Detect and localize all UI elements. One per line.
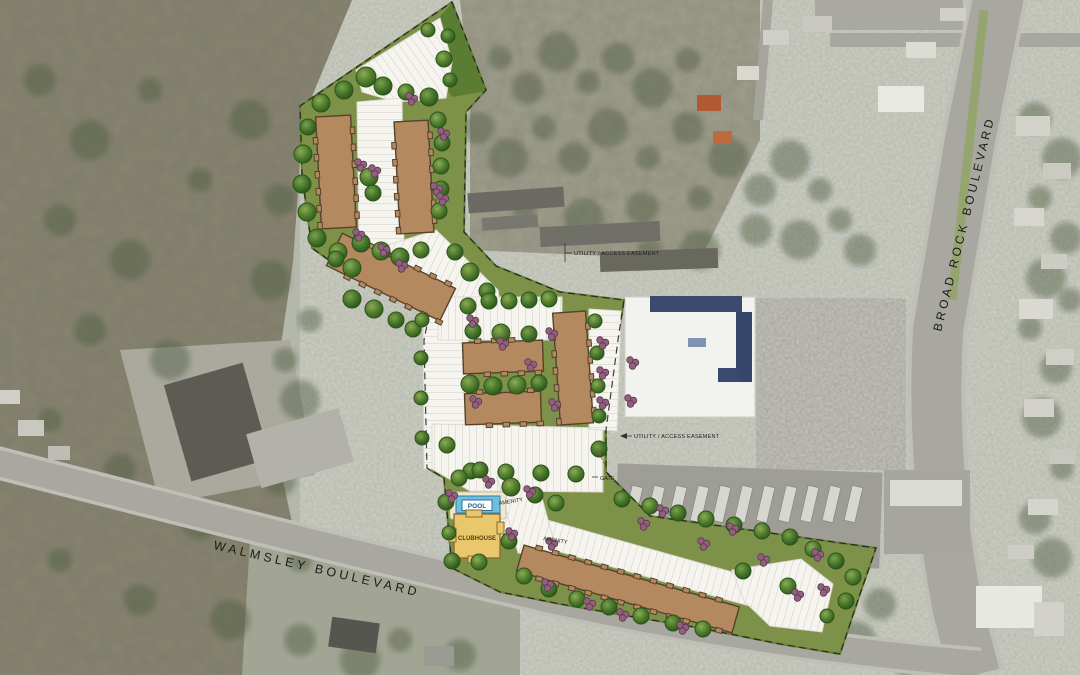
aerial-tree [576, 70, 600, 94]
map-canvas: POOL CLUBHOUSE UTILITY / ACCESS EASEMENT… [0, 0, 1080, 675]
tree [365, 300, 383, 318]
tree [521, 292, 537, 308]
aerial-tree [210, 600, 250, 640]
tree [433, 158, 449, 174]
aerial-tree [230, 100, 270, 140]
tree [541, 291, 557, 307]
tree [521, 326, 537, 342]
tree [335, 81, 353, 99]
tree [569, 591, 585, 607]
tree [356, 67, 376, 87]
tree [293, 175, 311, 193]
aerial-building [802, 16, 832, 32]
gate-label: GATE [600, 476, 615, 482]
tree [460, 298, 476, 314]
aerial-tree [780, 220, 820, 260]
tree [300, 119, 316, 135]
aerial-tree [602, 42, 634, 74]
tree [441, 29, 455, 43]
aerial-tree [124, 584, 156, 616]
clubhouse-label: CLUBHOUSE [458, 536, 496, 542]
tree [695, 621, 711, 637]
aerial-tree [626, 192, 658, 224]
aerial-tree [138, 78, 162, 102]
aerial-tree [808, 178, 832, 202]
tree [484, 377, 502, 395]
aerial-tree [672, 112, 704, 144]
tree [533, 465, 549, 481]
tree [443, 73, 457, 87]
aerial-building [18, 420, 44, 436]
tree [431, 203, 447, 219]
aerial-tree [48, 548, 72, 572]
aerial-tree [488, 46, 512, 70]
tree [591, 379, 605, 393]
aerial-tree [1018, 316, 1042, 340]
tree [601, 599, 617, 615]
aerial-building [763, 30, 789, 45]
tree [592, 409, 606, 423]
tree [328, 251, 344, 267]
aerial-tree [74, 314, 106, 346]
tree [294, 145, 312, 163]
tree [820, 609, 834, 623]
aerial-tree [828, 208, 852, 232]
aerial-building [1049, 449, 1075, 464]
aerial-building [940, 8, 966, 21]
aerial-tree [538, 32, 578, 72]
amenity-area: POOL CLUBHOUSE [449, 492, 506, 563]
tree [298, 203, 316, 221]
site-plan-aerial-map: POOL CLUBHOUSE UTILITY / ACCESS EASEMENT… [0, 0, 1080, 675]
tree [343, 259, 361, 277]
tree [461, 263, 479, 281]
tree [548, 495, 564, 511]
apartment-building [312, 115, 360, 229]
aerial-tree [864, 588, 896, 620]
tree [481, 293, 497, 309]
tree [588, 314, 602, 328]
apartment-building [391, 120, 438, 234]
tree [439, 437, 455, 453]
aerial-tree [273, 348, 297, 372]
aerial-building [1016, 116, 1050, 136]
tree [421, 23, 435, 37]
tree [754, 523, 770, 539]
tree [508, 376, 526, 394]
tree [531, 375, 547, 391]
tree [415, 431, 429, 445]
tree [447, 244, 463, 260]
tree [471, 554, 487, 570]
aerial-tree [676, 48, 700, 72]
aerial-building [1014, 208, 1044, 226]
tree [343, 290, 361, 308]
aerial-tree [1028, 186, 1052, 210]
aerial-building [1046, 349, 1074, 365]
tree [451, 470, 467, 486]
tree [782, 529, 798, 545]
aerial-tree [280, 380, 320, 420]
tree [415, 313, 429, 327]
tree [828, 553, 844, 569]
utility-easement-label-south: UTILITY / ACCESS EASEMENT [634, 434, 720, 440]
aerial-tree [284, 624, 316, 656]
aerial-building [1041, 254, 1067, 269]
tree [633, 608, 649, 624]
tree [670, 505, 686, 521]
aerial-building [48, 446, 70, 460]
tree [413, 242, 429, 258]
tree [312, 94, 330, 112]
aerial-tree [388, 628, 412, 652]
tree [430, 112, 446, 128]
tree [845, 569, 861, 585]
aerial-tree [588, 108, 628, 148]
aerial-building [976, 586, 1042, 628]
tree [642, 498, 658, 514]
aerial-tree [44, 204, 76, 236]
aerial-building [713, 131, 732, 144]
aerial-building [424, 646, 454, 666]
tree [501, 293, 517, 309]
tree [698, 511, 714, 527]
aerial-tree [250, 260, 290, 300]
tree [436, 51, 452, 67]
aerial-tree [110, 240, 150, 280]
tree [308, 229, 326, 247]
pool-label: POOL [468, 503, 486, 510]
aerial-tree [636, 146, 660, 170]
tree [838, 593, 854, 609]
aerial-tree [740, 214, 772, 246]
aerial-tree [688, 186, 712, 210]
tree [461, 375, 479, 393]
aerial-tree [264, 184, 296, 216]
aerial-tree [844, 234, 876, 266]
aerial-tree [744, 174, 776, 206]
aerial-tree [298, 308, 322, 332]
tree [414, 391, 428, 405]
tree [444, 553, 460, 569]
aerial-building [0, 390, 20, 404]
tree [735, 563, 751, 579]
aerial-building [906, 42, 936, 58]
aerial-tree [532, 116, 556, 140]
tree [388, 312, 404, 328]
utility-easement-label-north: UTILITY / ACCESS EASEMENT [574, 251, 660, 257]
aerial-tree [70, 120, 110, 160]
aerial-tree [512, 72, 544, 104]
tree [614, 491, 630, 507]
tree [516, 568, 532, 584]
aerial-tree [488, 138, 528, 178]
tree [374, 77, 392, 95]
aerial-building [1034, 602, 1064, 636]
tree [420, 88, 438, 106]
tree [365, 185, 381, 201]
aerial-tree [632, 68, 672, 108]
aerial-building [1024, 399, 1054, 417]
aerial-tree [150, 340, 190, 380]
aerial-tree [1032, 538, 1072, 578]
tree [414, 351, 428, 365]
aerial-tree [770, 140, 810, 180]
aerial-tree [188, 168, 212, 192]
aerial-building [878, 86, 924, 112]
aerial-building [737, 66, 759, 80]
tree [591, 441, 607, 457]
aerial-building [1028, 499, 1058, 515]
aerial-building [697, 95, 721, 111]
aerial-tree [558, 142, 590, 174]
aerial-building [1008, 545, 1034, 559]
aerial-building [1043, 163, 1071, 179]
tree [568, 466, 584, 482]
tree [442, 526, 456, 540]
aerial-building [1019, 299, 1053, 319]
tree [502, 478, 520, 496]
aerial-tree [24, 64, 56, 96]
